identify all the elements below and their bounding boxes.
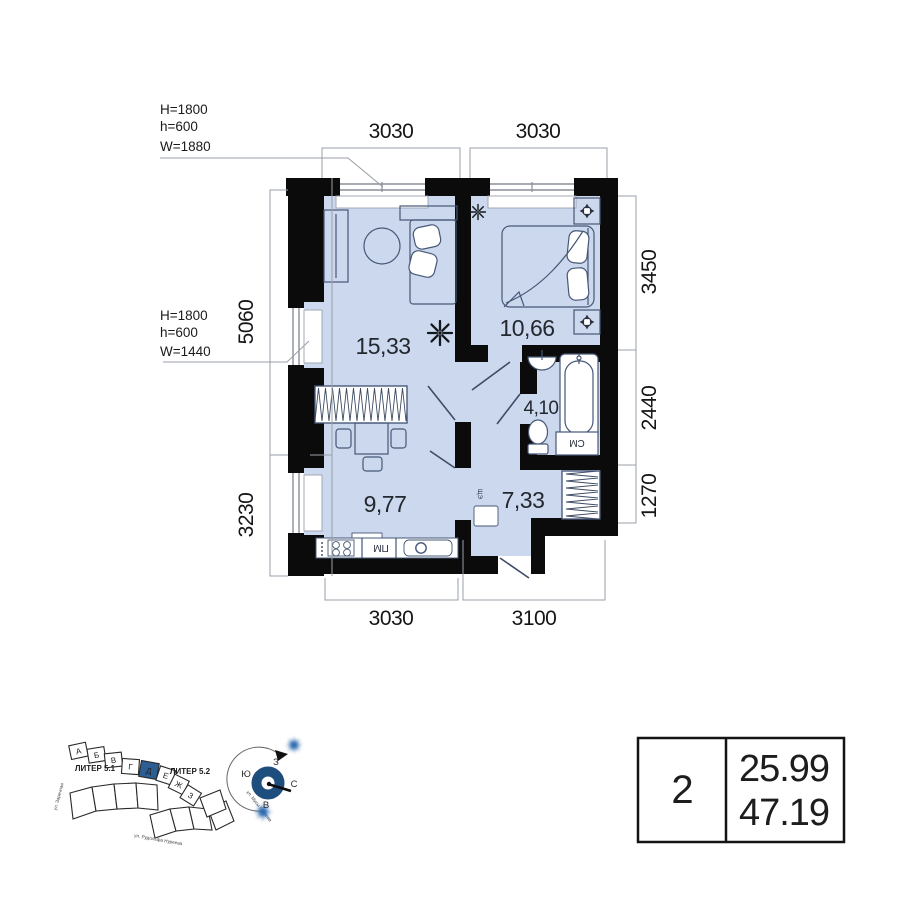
bathtub-tap-knob — [577, 356, 581, 360]
site-building — [92, 784, 117, 811]
dishwasher-label: ПМ — [373, 542, 389, 553]
room-label-bedroom: 10,66 — [499, 315, 554, 341]
wall-kitchen-bottom — [288, 556, 498, 574]
info-table-rooms: 2 — [671, 768, 692, 812]
sun-icon-top — [287, 738, 301, 752]
annotation-window-top: H=1800 h=600 W=1880 — [160, 102, 211, 154]
street-left-label: ул. Заречная — [53, 782, 65, 811]
compass-north-label: С — [291, 779, 298, 790]
liter-52-label: ЛИТЕР 5.2 — [170, 767, 211, 776]
dim-bottom-1: 3030 — [369, 607, 414, 630]
dim-bottom-2: 3100 — [512, 607, 557, 630]
washing-machine-label: СМ — [569, 437, 584, 448]
dim-top-2: 3030 — [516, 120, 561, 143]
annotation-window-left: H=1800 h=600 W=1440 — [160, 308, 211, 359]
dim-left-1: 5060 — [235, 300, 258, 345]
electric-panel-label: ЩЭ — [476, 489, 482, 500]
floorplan-drawing: СМ ПМ ЩЭ 15,33 10,66 4,10 9,77 7,33 — [0, 0, 900, 900]
ceiling-light-icon-living — [428, 321, 452, 345]
counter-tab — [352, 533, 382, 538]
info-table-total-area: 47.19 — [739, 792, 829, 834]
compass: З Ю С В — [227, 738, 301, 820]
pillow-1 — [566, 230, 589, 264]
wall-central-upper — [455, 196, 471, 360]
svg-text:h=600: h=600 — [160, 119, 198, 134]
site-building — [114, 783, 138, 809]
info-table-living-area: 25.99 — [739, 748, 829, 790]
room-label-bath: 4,10 — [524, 398, 559, 419]
door-entrance — [500, 558, 529, 578]
site-building — [70, 787, 96, 819]
pillow-2 — [567, 267, 590, 301]
dim-top-1: 3030 — [369, 120, 414, 143]
window-top-bedroom — [488, 178, 576, 208]
wall-right — [600, 178, 618, 536]
compass-south-label: Ю — [241, 769, 251, 780]
dim-right-1: 3450 — [638, 250, 661, 295]
wall-bedroom-bottom-stub — [455, 345, 488, 362]
compass-east-label: В — [263, 800, 269, 811]
svg-text:H=1800: H=1800 — [160, 308, 208, 323]
dim-right-2: 2440 — [638, 386, 661, 431]
compass-needle-hub — [267, 782, 271, 786]
svg-text:h=600: h=600 — [160, 325, 198, 340]
dim-left-2: 3230 — [235, 493, 258, 538]
room-label-living: 15,33 — [355, 333, 410, 359]
wall-central-mid — [455, 422, 471, 468]
room-label-kitchen: 9,77 — [364, 491, 407, 517]
bathtub — [560, 354, 598, 440]
site-plan: А Б В Г Д Е Ж З ЛИТЕР 5.1 ЛИТЕР 5.2 ул. … — [53, 742, 274, 846]
wardrobe-hatched-living-fill — [315, 386, 407, 423]
wall-entry-step — [531, 518, 545, 574]
wall-top-mid — [425, 178, 490, 196]
pilaster-left-top — [304, 196, 324, 302]
dim-right-3: 1270 — [638, 474, 661, 519]
window-top-living — [336, 178, 428, 208]
compass-west-label: З — [273, 757, 279, 768]
info-table: 2 25.99 47.19 — [638, 738, 844, 842]
svg-text:W=1440: W=1440 — [160, 344, 211, 359]
floorplan-page: СМ ПМ ЩЭ 15,33 10,66 4,10 9,77 7,33 — [0, 0, 900, 900]
svg-text:W=1880: W=1880 — [160, 139, 211, 154]
electric-panel-box — [474, 506, 498, 526]
wardrobe-hall-fill — [562, 471, 600, 519]
svg-text:H=1800: H=1800 — [160, 102, 208, 117]
toilet-bowl — [529, 420, 548, 444]
wall-left-mid — [288, 365, 304, 473]
toilet-tank — [528, 444, 548, 454]
window-left-kitchen — [288, 473, 322, 533]
liter-51-label: ЛИТЕР 5.1 — [75, 764, 116, 773]
room-label-hall: 7,33 — [502, 487, 545, 513]
ceiling-light-icon-bedroom — [471, 205, 486, 220]
wall-bath-bottom — [520, 455, 618, 470]
wall-left-upper — [288, 178, 304, 308]
site-building — [136, 783, 158, 810]
